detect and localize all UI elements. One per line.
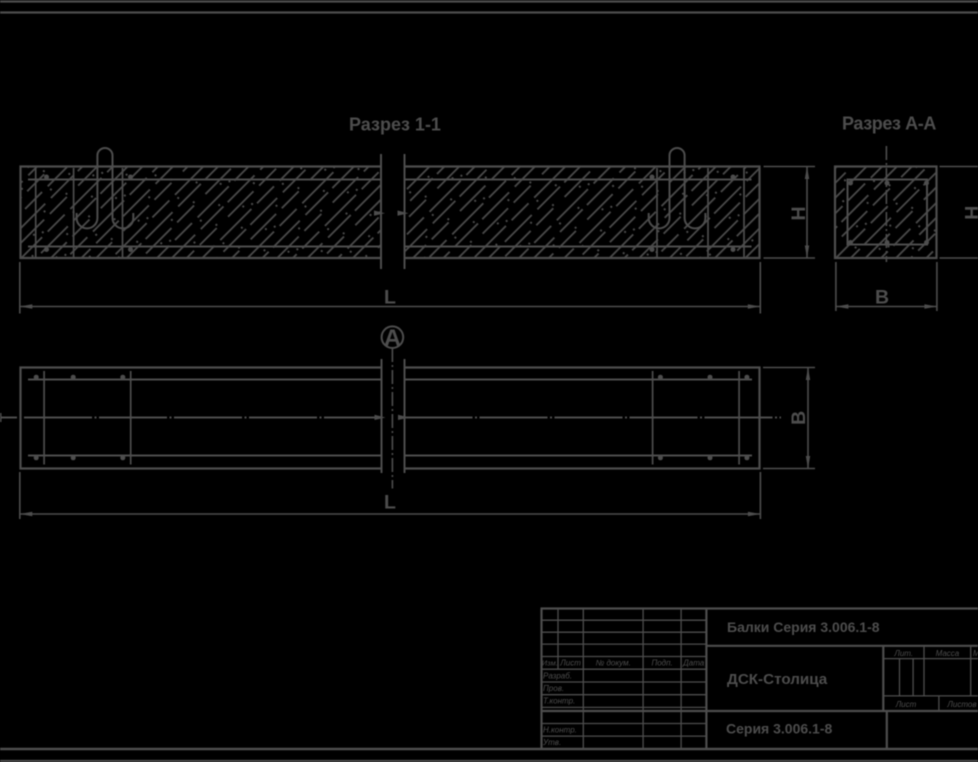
svg-text:L: L	[384, 287, 396, 309]
svg-text:Утв.: Утв.	[542, 738, 561, 747]
svg-text:Н.контр.: Н.контр.	[543, 726, 577, 735]
svg-text:Разрез 1-1: Разрез 1-1	[349, 115, 441, 135]
svg-text:Листов: Листов	[946, 700, 976, 709]
svg-text:Подп.: Подп.	[651, 659, 672, 668]
svg-text:Дата: Дата	[682, 659, 705, 668]
svg-text:Масса: Масса	[936, 649, 960, 658]
svg-text:Лист: Лист	[559, 659, 581, 668]
svg-text:№ докум.: № докум.	[596, 659, 631, 668]
svg-text:Балки Серия 3.006.1-8: Балки Серия 3.006.1-8	[727, 619, 880, 635]
svg-text:Н: Н	[962, 206, 978, 220]
svg-text:Н: Н	[788, 206, 810, 220]
svg-text:Лит.: Лит.	[893, 649, 913, 658]
svg-text:В: В	[788, 411, 810, 425]
svg-text:Т.контр.: Т.контр.	[543, 697, 575, 706]
svg-text:А: А	[384, 325, 401, 352]
svg-text:В: В	[875, 287, 889, 309]
svg-text:Масштаб: Масштаб	[973, 649, 978, 658]
svg-text:Серия 3.006.1-8: Серия 3.006.1-8	[726, 721, 832, 737]
svg-text:Лист: Лист	[895, 700, 917, 709]
svg-text:Пров.: Пров.	[543, 684, 564, 693]
svg-text:L: L	[384, 492, 396, 514]
svg-text:Разраб.: Разраб.	[543, 671, 572, 680]
svg-text:Разрез А-А: Разрез А-А	[842, 114, 936, 134]
svg-text:Изм.: Изм.	[542, 659, 558, 668]
svg-text:ДСК-Столица: ДСК-Столица	[727, 671, 828, 688]
